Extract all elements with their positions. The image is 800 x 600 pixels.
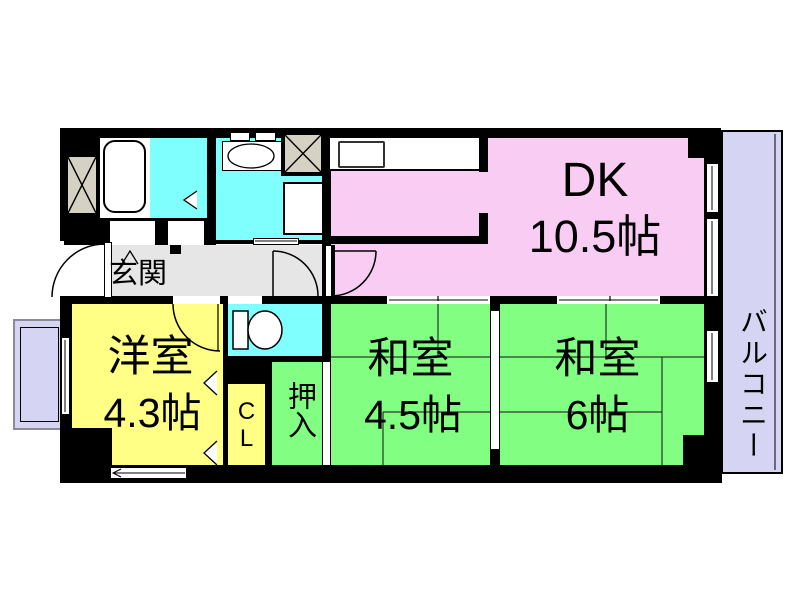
kitchen-halfwall-upper xyxy=(479,128,488,172)
wall-mid-sanitary xyxy=(207,131,216,245)
entrance-door-arc xyxy=(52,244,105,297)
room-washroom-a xyxy=(150,138,207,218)
vanity-counter xyxy=(222,141,282,171)
oshiire-label: 押入 xyxy=(280,364,318,456)
japanese6-label: 和室 xyxy=(515,336,680,382)
japanese6-size-label: 6帖 xyxy=(515,392,680,438)
wall-cl-oshiire xyxy=(265,384,272,465)
washroom-sliding-door xyxy=(253,238,299,245)
bathroom-door-opening xyxy=(110,221,155,245)
bathtub xyxy=(103,140,146,213)
kitchen-sink xyxy=(338,141,385,168)
dk-size-label: 10.5帖 xyxy=(470,210,720,262)
balcony-left-inner-line xyxy=(20,327,59,422)
closet-cl-label: CL xyxy=(229,388,263,462)
room-japanese-45 xyxy=(331,304,490,465)
dk-japanese6-sliding-opening xyxy=(557,296,660,304)
vanity-shelf-1 xyxy=(230,132,250,141)
dk-label: DK xyxy=(495,156,695,206)
japanese45-label: 和室 xyxy=(328,336,493,382)
dk-balcony-window-1 xyxy=(706,163,719,213)
room-japanese-6 xyxy=(500,304,704,465)
washing-machine-pan xyxy=(283,182,324,235)
pillar-top-right xyxy=(688,128,721,158)
entrance-label: 玄関 xyxy=(106,256,170,292)
vanity-shelf-2 xyxy=(255,132,276,141)
western-room-size-label: 4.3帖 xyxy=(55,390,250,436)
kitchen-halfwall-horizontal xyxy=(331,236,488,244)
partition-stub-bottom xyxy=(490,449,500,467)
pillar-bottom-right xyxy=(683,435,721,466)
western-bottom-window xyxy=(110,467,187,479)
balcony-label: バルコニー xyxy=(724,297,780,472)
japanese6-balcony-window xyxy=(706,330,719,383)
toilet-door-opening xyxy=(228,296,262,304)
shaft-x-box-left xyxy=(68,157,96,213)
hall-dk-door-frame xyxy=(326,246,331,298)
shaft-x-box-right xyxy=(285,135,321,172)
western-room-label: 洋室 xyxy=(58,334,243,380)
dk-japanese45-sliding-opening xyxy=(387,296,490,304)
partition-stub-top xyxy=(490,296,500,311)
washroom-door-opening xyxy=(168,221,204,245)
porch-top-line xyxy=(72,241,105,244)
japanese45-size-label: 4.5帖 xyxy=(328,392,498,438)
wall-top xyxy=(65,128,720,138)
floor-plan: DK 10.5帖 バルコニー 洋室 4.3帖 和室 4.5帖 和室 6帖 玄関 … xyxy=(0,0,800,600)
western-room-door-opening xyxy=(173,296,220,304)
